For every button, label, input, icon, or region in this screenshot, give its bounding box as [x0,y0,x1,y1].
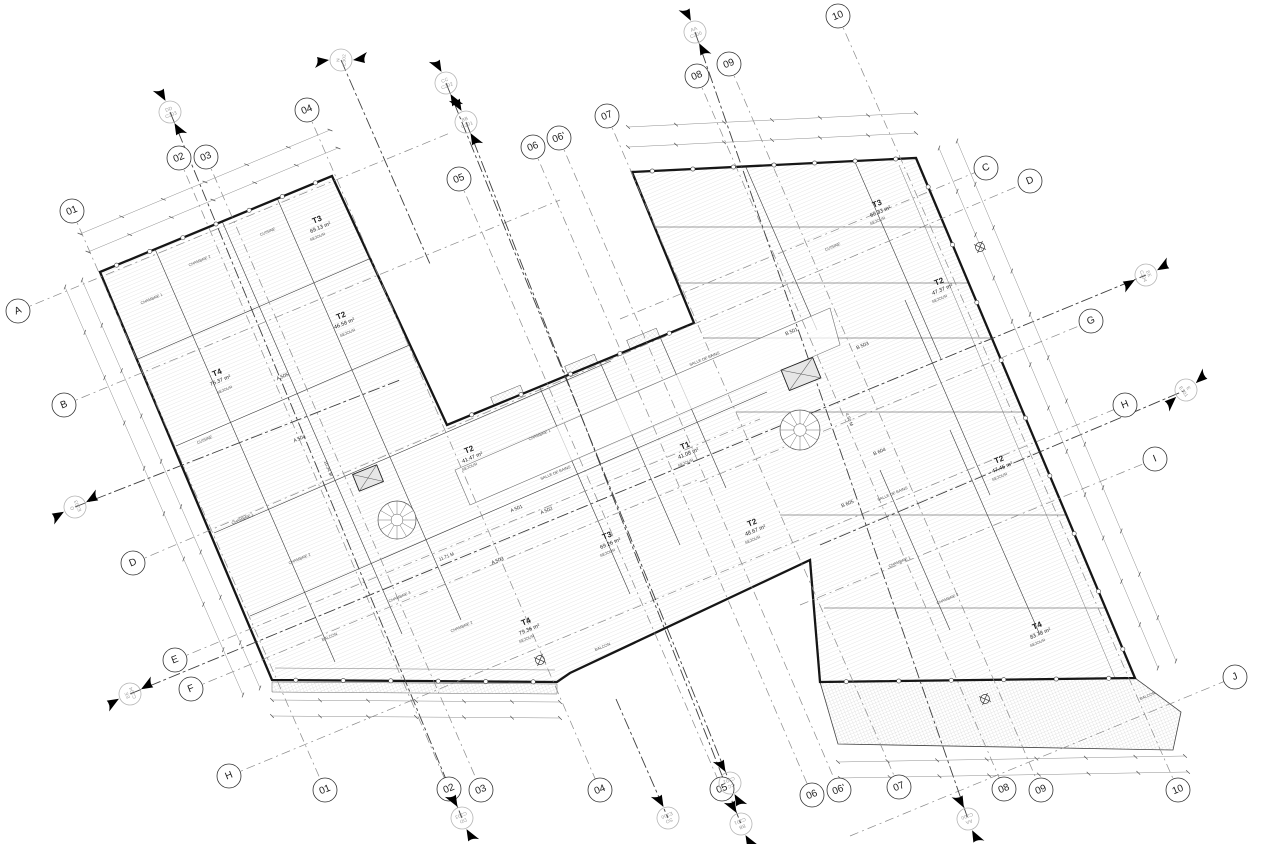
svg-text:N: N [336,58,342,62]
section-marker-aa-13: AAC200 [949,791,987,844]
section-marker-bb-3: BBC201 [446,94,486,150]
grid-bubble-02-top: 02 [167,146,191,170]
dim-chain-7 [626,111,918,128]
floor-plan-sheet: T369.13 m²T246.58 m²T476.37 m²T241.47 m²… [0,0,1280,844]
grid-bubble-05-top: 05 [447,167,471,191]
grid-bubble-D-right: D [1018,169,1042,193]
grid-bubble-09-top: 09 [717,52,741,76]
grid-bubble-E-left: E [163,648,187,672]
grid-bubble-D-left: D [121,551,145,575]
grid-bubble-C-right: C [974,156,998,180]
dim-chain-1 [270,714,562,720]
section-marker-ee-6: EEC204 [102,674,158,715]
grid-bubble-04-bottom: 04 [588,778,612,802]
grid-bubble-06-top: 06 [521,135,545,159]
balcony-strip-south [272,682,557,694]
grid-bubble-08-bottom: 08 [992,777,1016,801]
grid-bubble-H-left: H [217,764,241,788]
grid-bubble-04-top: 04 [295,98,319,122]
grid-bubble-01-bottom: 01 [313,778,337,802]
grid-bubble-A-left: A [6,299,30,323]
grid-bubble-08-top: 08 [685,64,709,88]
grid-bubble-07-top: 07 [595,104,619,128]
floor-plan-canvas: T369.13 m²T246.58 m²T476.37 m²T241.47 m²… [0,0,1280,844]
section-marker-n-0: NE302 [315,49,367,71]
grid-bubble-10-top: 10 [826,4,850,28]
grid-bubble-I-right: I [1143,447,1167,471]
grid-bubble-06-bottom: 06 [800,783,824,807]
section-marker-dd-1: DDC203 [150,84,190,140]
dim-chain-6 [626,131,918,148]
grid-bubble-10-bottom: 10 [1166,778,1190,802]
dim-chain-2 [836,754,1187,764]
grid-bubble-01-top: 01 [60,199,84,223]
dim-chain-0 [270,698,562,704]
section-marker-aa-4: AAC200 [676,4,714,60]
section-marker-o-5: OE303 [47,487,103,528]
grid-bubble-B-left: B [52,393,76,417]
spiral-stair-1 [780,410,820,450]
grid-bubble-07-bottom: 07 [887,775,911,799]
grid-bubble-09-bottom: 09 [1029,778,1053,802]
section-marker-e-8: EE301 [1158,366,1213,414]
grid-bubble-06p-top: 06' [547,126,571,150]
benchmark-symbol-2 [972,239,989,256]
spiral-stair-0 [378,501,416,539]
grid-bubble-06p-bottom: 06' [827,778,851,802]
grid-bubble-03-bottom: 03 [469,778,493,802]
grid-bubble-F-left: F [179,677,203,701]
grid-bubble-H-right: H [1113,393,1137,417]
section-marker-ee-7: EEC204 [1118,255,1174,296]
grid-bubble-J-right: J [1223,665,1247,689]
svg-text:E302: E302 [342,54,348,66]
grid-bubble-03-top: 03 [194,145,218,169]
grid-bubble-G-right: G [1079,309,1103,333]
terrace-band [820,678,1181,750]
